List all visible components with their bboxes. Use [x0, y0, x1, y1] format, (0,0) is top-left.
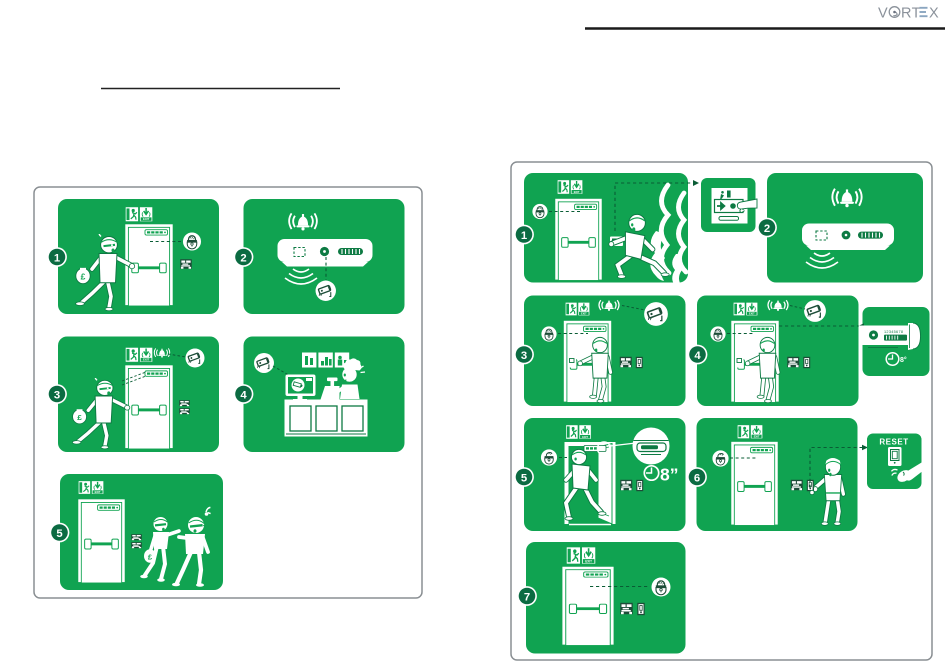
svg-text:6: 6 — [694, 472, 700, 484]
svg-text:8”: 8” — [660, 465, 678, 485]
svg-text:1: 1 — [54, 252, 60, 264]
svg-text:V: V — [878, 6, 888, 22]
svg-text:12345678: 12345678 — [884, 330, 903, 334]
svg-text:RT: RT — [901, 6, 921, 22]
svg-text:RESET: RESET — [879, 438, 908, 447]
svg-text:5: 5 — [56, 528, 62, 540]
svg-text:4: 4 — [694, 350, 701, 362]
svg-text:3: 3 — [54, 389, 60, 401]
svg-text:3: 3 — [521, 350, 527, 362]
svg-text:X: X — [929, 6, 939, 22]
svg-text:5: 5 — [521, 472, 527, 484]
svg-text:7: 7 — [524, 591, 530, 603]
svg-text:1: 1 — [521, 230, 527, 242]
svg-text:2: 2 — [764, 223, 770, 235]
svg-text:2: 2 — [240, 252, 246, 264]
svg-text:8°: 8° — [900, 356, 907, 364]
svg-text:4: 4 — [240, 389, 247, 401]
